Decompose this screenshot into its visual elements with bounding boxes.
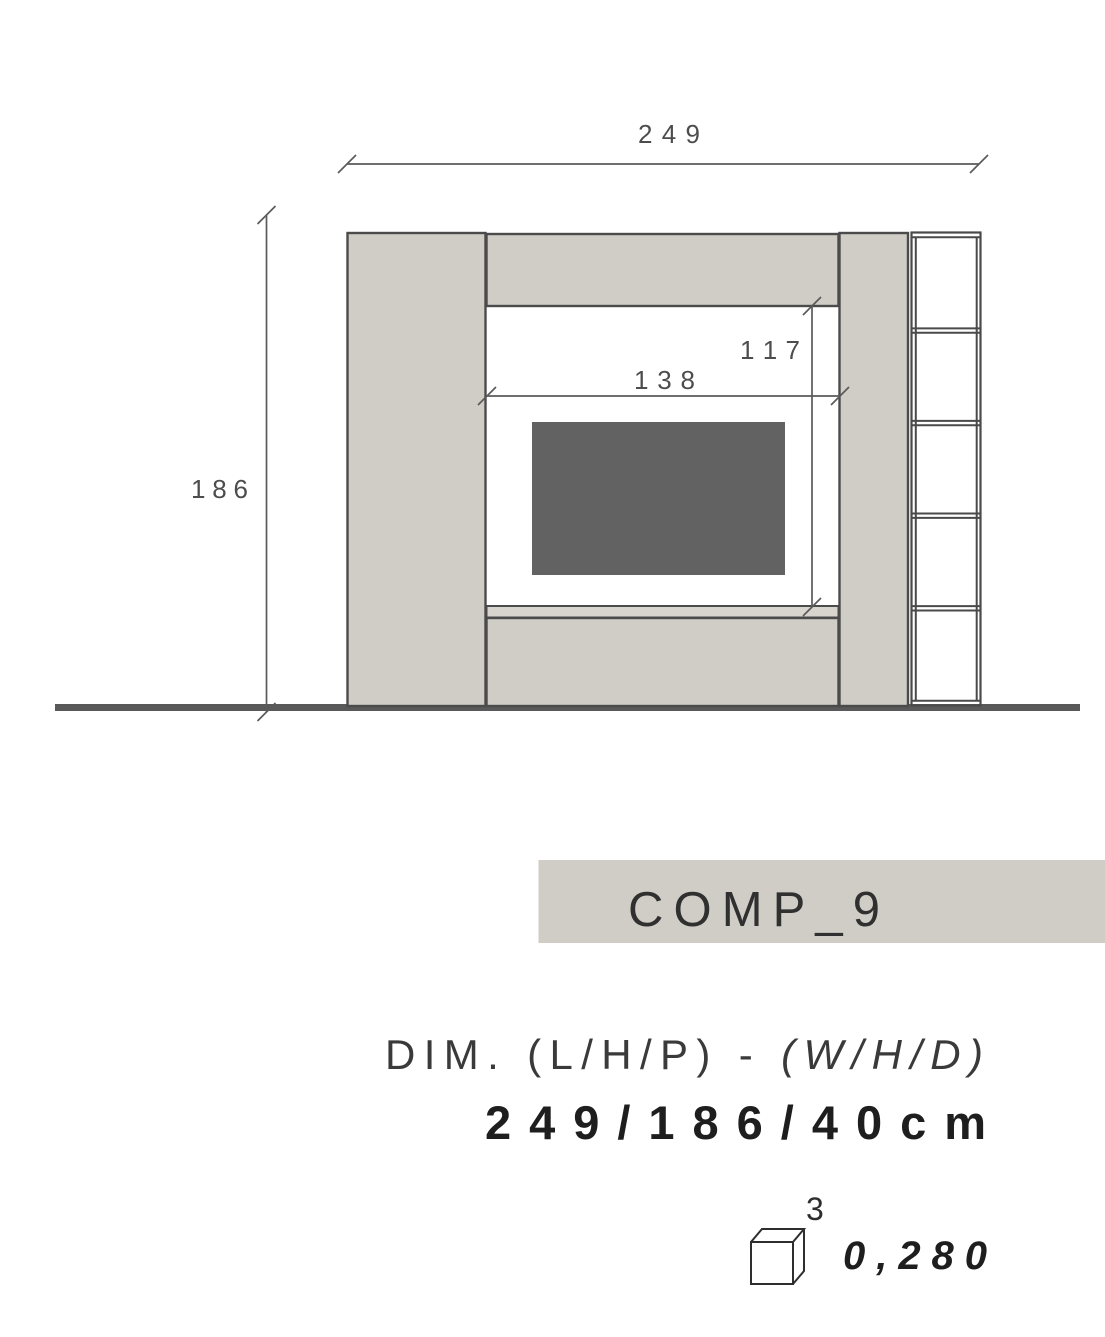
svg-text:DIM. (L/H/P) - (W/H/D): DIM. (L/H/P) - (W/H/D) xyxy=(385,1031,983,1078)
svg-text:1 1 7: 1 1 7 xyxy=(740,335,800,365)
svg-text:0,280: 0,280 xyxy=(843,1234,987,1278)
svg-text:1 8 6: 1 8 6 xyxy=(191,474,248,504)
svg-text:1 3 8: 1 3 8 xyxy=(634,365,695,395)
svg-text:2 4 9: 2 4 9 xyxy=(638,119,700,149)
svg-text:2 4 9 / 1 8 6 / 4 0 c m: 2 4 9 / 1 8 6 / 4 0 c m xyxy=(485,1096,986,1149)
svg-text:3: 3 xyxy=(806,1191,824,1227)
